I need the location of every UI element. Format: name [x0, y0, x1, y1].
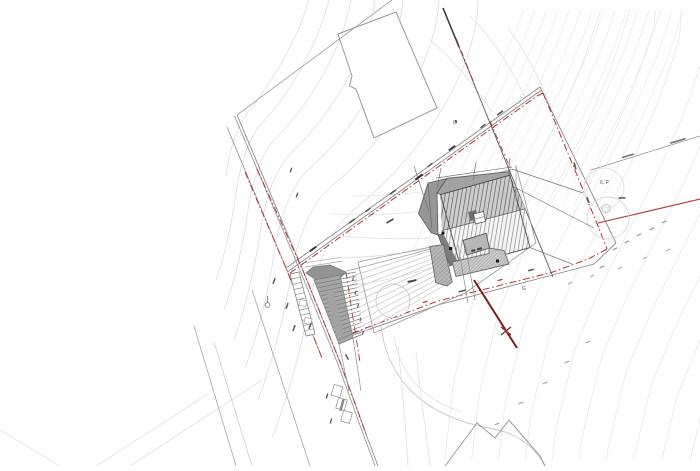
svg-text:G: G [522, 286, 526, 292]
svg-text:6. P: 6. P [600, 180, 610, 186]
svg-text:G: G [453, 120, 457, 126]
